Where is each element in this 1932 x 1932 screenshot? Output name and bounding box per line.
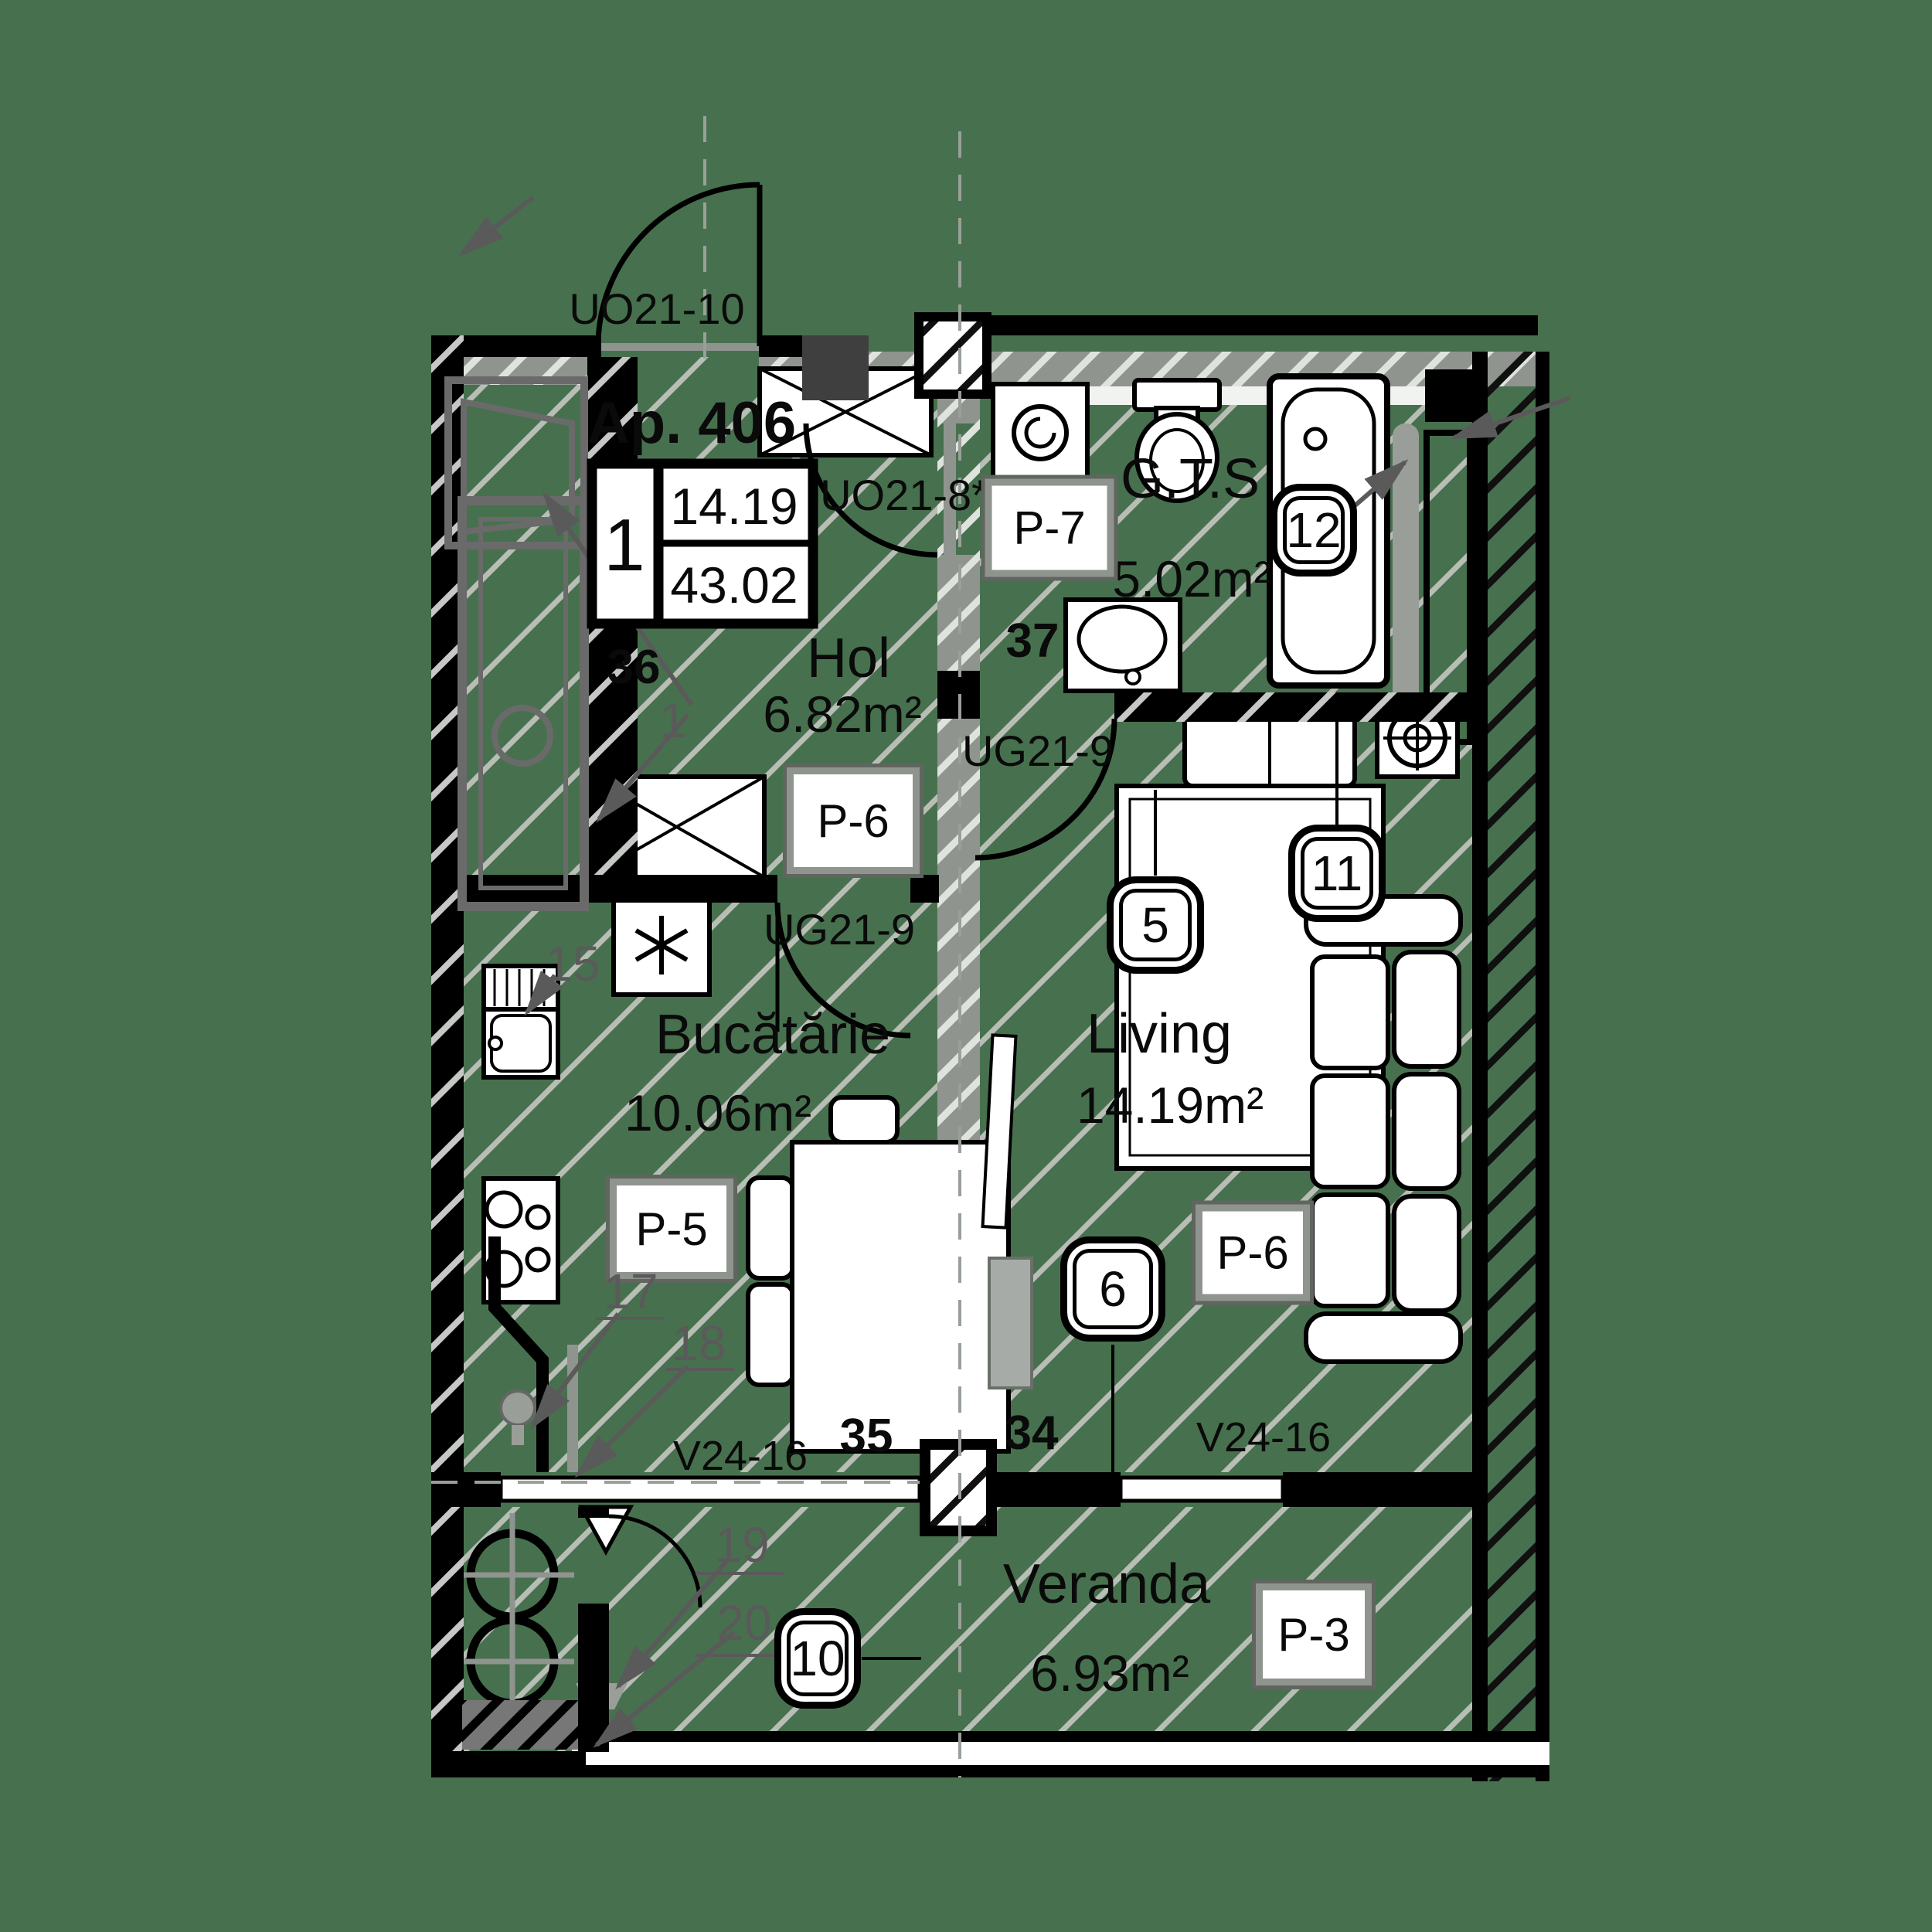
- boiler-box: [614, 896, 709, 995]
- tv-cabinet: [989, 1258, 1032, 1388]
- mark-37: 37: [1006, 617, 1060, 665]
- finish-tag-hol: P-6: [787, 767, 920, 874]
- room-area-living: 14.19m²: [1077, 1080, 1264, 1131]
- wall-veranda-bottom-top: [572, 1731, 1549, 1742]
- wall-hol-kitchen-right: [910, 875, 939, 903]
- callout-11: 11: [1288, 825, 1386, 922]
- entry-dark-block-hatch: [462, 1700, 586, 1750]
- finish-tag-gts: P-7: [985, 479, 1114, 577]
- entry-door-code: UO21-10: [569, 287, 744, 331]
- finish-tag-veranda: P-3: [1256, 1583, 1372, 1685]
- callout-11-text: 11: [1311, 845, 1362, 902]
- detail-20: 20: [716, 1598, 771, 1648]
- floorplan-drawing: [0, 0, 1932, 1932]
- finish-tag-gts-text: P-7: [1013, 502, 1085, 555]
- wall-right-edge2: [1536, 352, 1549, 1781]
- window-right-code: V24-16: [1196, 1417, 1331, 1458]
- callout-12-text: 12: [1286, 502, 1341, 559]
- bathroom-sink: [1066, 600, 1180, 691]
- kitchen-sink: [484, 1009, 558, 1077]
- window-band-right: [1121, 1478, 1283, 1501]
- callout-6: 6: [1060, 1236, 1165, 1342]
- callout-10-text: 10: [790, 1630, 845, 1687]
- apartment-number: Ap. 406: [587, 394, 796, 453]
- entry-vwall-top: [578, 1507, 609, 1518]
- entry-vwall-bottom: [578, 1604, 609, 1752]
- floor-veranda: [464, 1507, 1536, 1765]
- floorplan-canvas: UO21-10 Ap. 406 1 14.19 43.02 36 1 Hol 6…: [0, 0, 1932, 1932]
- legend-total-area: 43.02: [670, 560, 798, 611]
- wall-right-hatch: [1488, 352, 1536, 1781]
- finish-tag-living: P-6: [1196, 1205, 1310, 1301]
- wall-top-stub: [759, 335, 804, 357]
- mark-35: 35: [840, 1413, 893, 1461]
- room-area-veranda: 6.93m²: [1030, 1648, 1189, 1699]
- wall-veranda-c: [1283, 1472, 1488, 1507]
- callout-10: 10: [774, 1608, 861, 1709]
- room-name-living: Living: [1087, 1006, 1232, 1062]
- living-door-code: UG21-9: [962, 730, 1114, 773]
- finish-tag-living-text: P-6: [1216, 1226, 1288, 1280]
- room-area-gts: 5.02m²: [1112, 553, 1270, 604]
- duct-block: [802, 335, 869, 400]
- wall-veranda-a: [431, 1472, 501, 1507]
- legend-living-area: 14.19: [670, 481, 798, 532]
- sofa: [1306, 896, 1461, 1362]
- wall-right-edge1: [1472, 352, 1488, 1781]
- finish-tag-hol-text: P-6: [817, 794, 889, 848]
- room-area-kitchen: 10.06m²: [624, 1087, 811, 1138]
- washing-machine: [993, 384, 1087, 481]
- legend-rooms: 1: [604, 509, 645, 583]
- finish-tag-kitchen-text: P-5: [635, 1202, 707, 1256]
- wall-gts-bottom-hatch: [1114, 692, 1472, 722]
- callout-12: 12: [1270, 484, 1357, 577]
- callout-6-text: 6: [1099, 1260, 1127, 1318]
- mark-34: 34: [1005, 1410, 1059, 1458]
- wall-entry-bottom: [431, 1751, 586, 1777]
- callout-5: 5: [1107, 876, 1204, 974]
- detail-17: 17: [603, 1267, 658, 1316]
- wall-veranda-b: [997, 1472, 1121, 1507]
- finish-tag-veranda-text: P-3: [1277, 1608, 1349, 1662]
- detail-19: 19: [714, 1520, 769, 1570]
- callout-5-text: 5: [1141, 896, 1169, 954]
- veranda-bottom-window: [572, 1742, 1549, 1765]
- detail-18: 18: [671, 1318, 726, 1368]
- kitchen-door-code: UG21-9: [764, 908, 915, 951]
- gts-door-code: UO21-8*: [820, 474, 988, 517]
- room-name-hol: Hol: [807, 631, 890, 686]
- room-name-veranda: Veranda: [1003, 1556, 1210, 1612]
- wall-veranda-bottom-bot: [572, 1765, 1549, 1777]
- wall-top-right: [992, 315, 1538, 335]
- detail-15: 15: [545, 939, 600, 988]
- detail-1: 1: [659, 696, 687, 745]
- vent-shaft-hatch: [923, 321, 982, 389]
- room-name-gts: G.T.S: [1121, 451, 1260, 507]
- dining-table: [792, 1142, 1009, 1451]
- window-left-code: V24-16: [673, 1435, 808, 1477]
- entry-threshold-line: [600, 343, 760, 351]
- mark-36: 36: [607, 644, 661, 692]
- room-area-hol: 6.82m²: [763, 689, 921, 740]
- room-name-kitchen: Bucătărie: [655, 1007, 890, 1063]
